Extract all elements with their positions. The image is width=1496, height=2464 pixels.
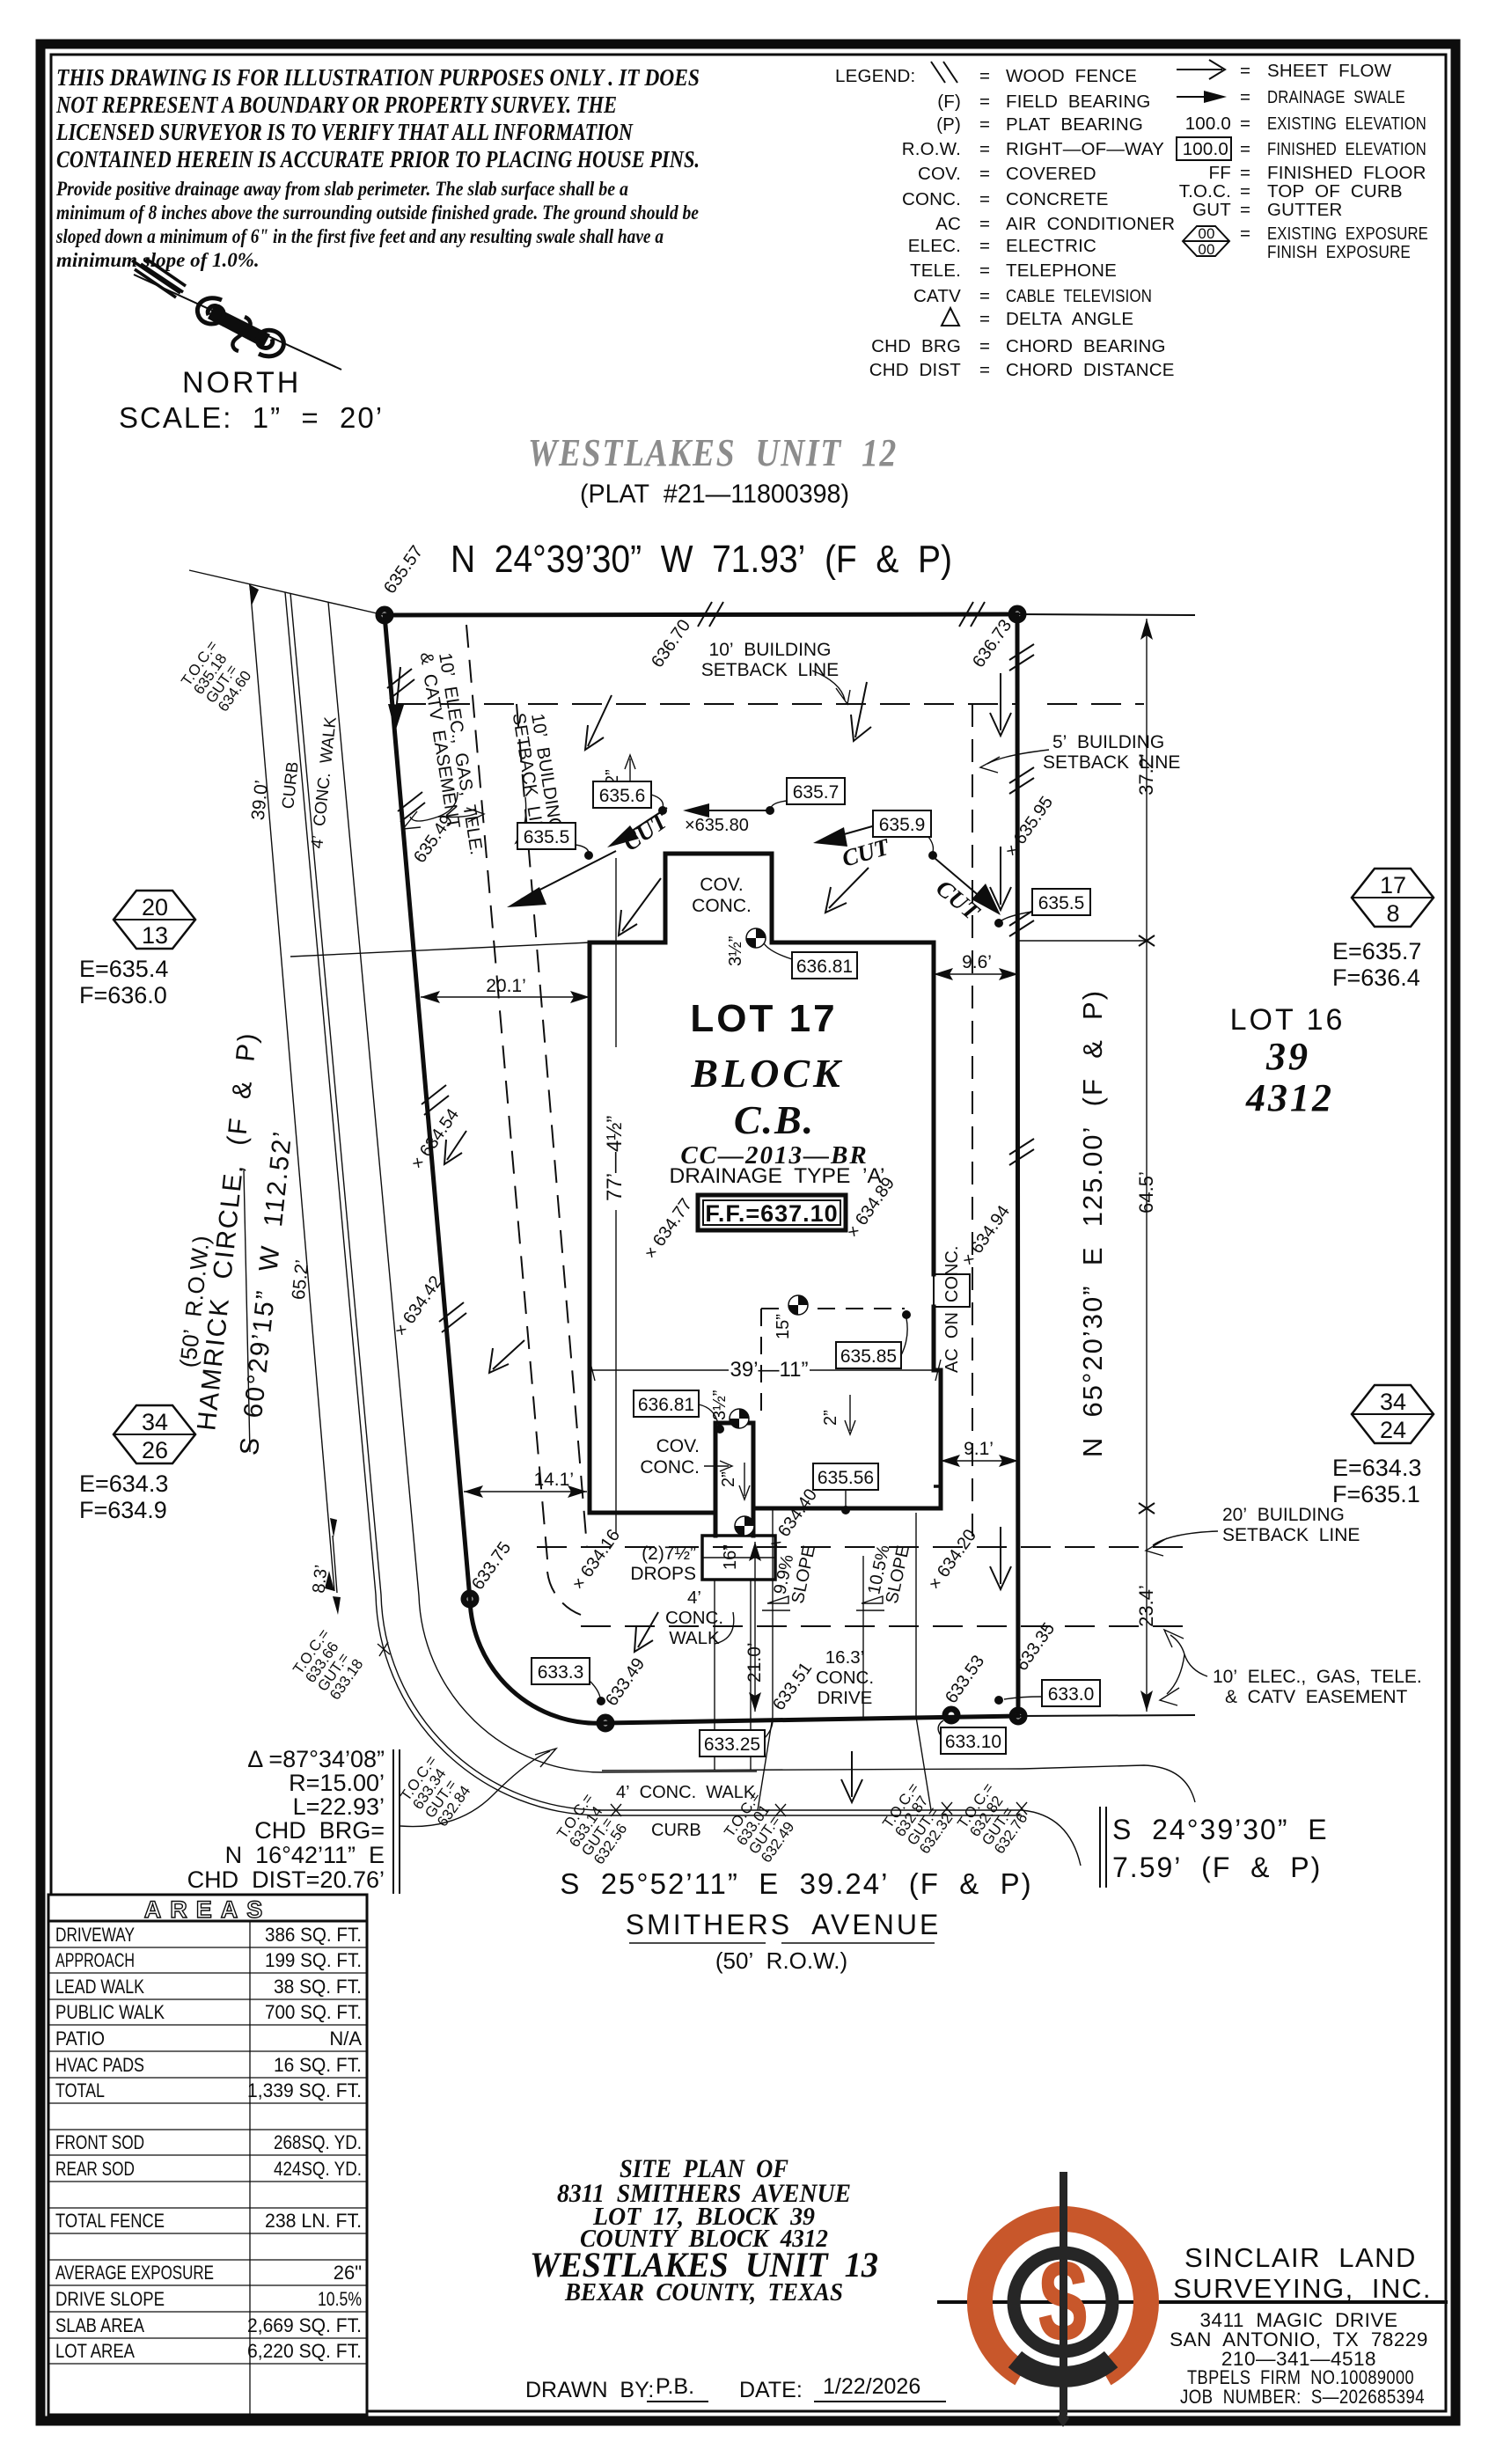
svg-text:Provide positive drainage away: Provide positive drainage away from slab… [55,178,628,200]
svg-text:CONC.: CONC. [902,189,961,209]
svg-text:424SQ. YD.: 424SQ. YD. [274,2158,362,2180]
svg-text:2”: 2” [821,1410,840,1426]
svg-text:CHD DIST=20.76’: CHD DIST=20.76’ [187,1866,385,1893]
svg-text:GUT: GUT [1192,200,1231,220]
svg-text:RIGHT—OF—WAY: RIGHT—OF—WAY [1006,139,1164,159]
svg-text:SMITHERS AVENUE: SMITHERS AVENUE [626,1909,942,1940]
svg-text:1/22/2026: 1/22/2026 [823,2374,920,2399]
svg-text:TOP OF CURB: TOP OF CURB [1267,181,1403,202]
svg-text:4’ CONC. WALK: 4’ CONC. WALK [616,1783,756,1802]
svg-text:AC: AC [935,214,961,234]
svg-text:(2)7½”: (2)7½” [642,1544,696,1564]
svg-text:N/A: N/A [329,2028,362,2050]
svg-text:=: = [1240,87,1250,107]
svg-text:4312: 4312 [1245,1076,1334,1119]
svg-text:SINCLAIR LAND: SINCLAIR LAND [1184,2242,1417,2273]
svg-text:=: = [979,360,990,380]
svg-text:CONC.: CONC. [692,896,752,916]
svg-text:PATIO: PATIO [55,2028,105,2050]
svg-text:APPROACH: APPROACH [55,1949,135,1971]
svg-text:=: = [979,309,990,329]
svg-text:=: = [1240,181,1250,202]
svg-text:=: = [979,164,990,184]
svg-text:COV.: COV. [700,875,743,895]
svg-text:633.3: 633.3 [538,1662,584,1683]
svg-text:F=636.4: F=636.4 [1332,964,1420,991]
svg-text:CHD BRG=: CHD BRG= [254,1817,385,1844]
svg-text:REAR SOD: REAR SOD [55,2158,135,2180]
svg-text:(PLAT #21—11800398): (PLAT #21—11800398) [580,480,849,509]
svg-text:S 25°52’11” E 39.24’ (F &: S 25°52’11” E 39.24’ (F & P) [560,1867,1032,1900]
svg-text:34: 34 [142,1409,168,1435]
svg-text:15”: 15” [774,1314,793,1339]
svg-text:CABLE TELEVISION: CABLE TELEVISION [1006,286,1152,306]
svg-text:N 16°42’11” E: N 16°42’11” E [225,1842,385,1868]
svg-text:=: = [979,336,990,356]
svg-text:100.0: 100.0 [1183,139,1228,159]
svg-text:16 SQ. FT.: 16 SQ. FT. [274,2054,362,2076]
svg-text:199 SQ. FT.: 199 SQ. FT. [265,1949,362,1971]
svg-text:26": 26" [334,2262,362,2284]
svg-text:700 SQ. FT.: 700 SQ. FT. [265,2001,362,2023]
svg-text:9.6’: 9.6’ [962,952,992,972]
svg-text:THIS DRAWING IS FOR ILLUSTRATI: THIS DRAWING IS FOR ILLUSTRATION PURPOSE… [56,64,700,91]
svg-text:LOT AREA: LOT AREA [55,2340,135,2362]
svg-text:GUTTER: GUTTER [1267,200,1342,220]
svg-text:=: = [979,260,990,281]
svg-text:CONC.: CONC. [665,1608,723,1628]
svg-text:633.0: 633.0 [1048,1684,1095,1705]
svg-text:S 24°39’30” E: S 24°39’30” E [1112,1814,1329,1845]
svg-text:ELEC.: ELEC. [908,236,961,256]
svg-text:633.25: 633.25 [704,1734,760,1755]
svg-text:SETBACK LINE: SETBACK LINE [701,660,839,680]
svg-text:R.O.W.: R.O.W. [902,139,961,159]
svg-text:SLAB AREA: SLAB AREA [55,2314,144,2336]
svg-text:=: = [1240,224,1250,244]
svg-text:WOOD FENCE: WOOD FENCE [1006,66,1137,86]
svg-text:633.10: 633.10 [945,1732,1001,1752]
svg-text:E=635.7: E=635.7 [1332,938,1421,964]
svg-text:sloped down a minimum of 6" in: sloped down a minimum of 6" in the first… [55,225,664,247]
svg-text:20: 20 [142,894,168,920]
svg-text:minimum of 8 inches above the: minimum of 8 inches above the surroundin… [56,202,699,224]
svg-text:=: = [979,214,990,234]
svg-text:=: = [1240,163,1250,183]
svg-text:SCALE: 1” = 20’: SCALE: 1” = 20’ [119,401,384,434]
svg-text:DRAINAGE TYPE ’A’: DRAINAGE TYPE ’A’ [670,1164,885,1188]
svg-text:636.81: 636.81 [638,1395,694,1415]
svg-text:& CATV EASEMENT: & CATV EASEMENT [1225,1687,1407,1707]
svg-text:(P): (P) [936,114,961,135]
svg-text:9.1’: 9.1’ [964,1439,994,1459]
svg-text:BEXAR COUNTY, TEXAS: BEXAR COUNTY, TEXAS [564,2279,843,2306]
svg-text:T.O.C.: T.O.C. [1179,181,1231,202]
svg-text:=: = [979,236,990,256]
svg-text:20.1’: 20.1’ [486,976,526,996]
svg-text:=: = [979,114,990,135]
svg-text:=: = [979,92,990,112]
svg-text:4’: 4’ [687,1588,701,1608]
svg-text:AC ON CONC.: AC ON CONC. [942,1246,962,1373]
svg-text:5’ BUILDING: 5’ BUILDING [1052,732,1164,752]
svg-text:COV.: COV. [918,164,961,184]
svg-text:386 SQ. FT.: 386 SQ. FT. [265,1924,362,1946]
svg-text:FINISHED FLOOR: FINISHED FLOOR [1267,163,1426,183]
svg-text:FIELD BEARING: FIELD BEARING [1006,92,1151,112]
svg-text:CURB: CURB [651,1821,701,1840]
svg-text:ELECTRIC: ELECTRIC [1006,236,1096,256]
svg-text:DRIVE SLOPE: DRIVE SLOPE [55,2288,165,2310]
svg-text:6,220 SQ. FT.: 6,220 SQ. FT. [247,2340,362,2362]
svg-text:CONC.: CONC. [816,1668,874,1688]
svg-text:CONTAINED HEREIN IS ACCURATE P: CONTAINED HEREIN IS ACCURATE PRIOR TO PL… [56,146,700,172]
svg-text:13: 13 [142,922,168,949]
svg-text:E=634.3: E=634.3 [1332,1455,1421,1481]
svg-text:16”: 16” [721,1544,740,1570]
svg-text:635.5: 635.5 [1038,893,1085,913]
svg-text:CHD DIST: CHD DIST [869,360,962,380]
svg-text:24: 24 [1380,1417,1406,1443]
svg-text:R=15.00’: R=15.00’ [289,1770,385,1796]
svg-text:8.3’: 8.3’ [309,1564,331,1594]
svg-text:AVERAGE EXPOSURE: AVERAGE EXPOSURE [55,2262,214,2284]
svg-text:64.5’: 64.5’ [1135,1171,1157,1214]
svg-text:1,339 SQ. FT.: 1,339 SQ. FT. [247,2079,362,2101]
svg-text:LICENSED SURVEYOR IS TO VERIFY: LICENSED SURVEYOR IS TO VERIFY THAT ALL … [55,119,634,145]
svg-text:=: = [1240,200,1250,220]
svg-text:=: = [1240,139,1250,159]
svg-text:F.F.=637.10: F.F.=637.10 [705,1200,838,1227]
svg-text:=: = [979,189,990,209]
svg-text:EXISTING ELEVATION: EXISTING ELEVATION [1267,114,1426,134]
svg-text:=: = [979,286,990,306]
svg-text:×635.80: ×635.80 [685,816,749,835]
svg-text:DATE:: DATE: [739,2378,803,2402]
svg-text:2”: 2” [719,1471,738,1487]
svg-text:=: = [979,139,990,159]
svg-text:LOT 16: LOT 16 [1230,1003,1346,1037]
svg-text:N 65°20’30” E 125.00’ (F: N 65°20’30” E 125.00’ (F & P) [1077,989,1108,1457]
svg-text:77’—4½”: 77’—4½” [603,1116,627,1201]
svg-text:00: 00 [1198,225,1214,242]
svg-text:P.B.: P.B. [656,2374,694,2399]
svg-text:238 LN. FT.: 238 LN. FT. [265,2210,362,2232]
svg-text:DROPS: DROPS [630,1564,696,1584]
svg-text:LEGEND:: LEGEND: [835,66,915,86]
svg-text:LEAD WALK: LEAD WALK [55,1976,144,1998]
svg-text:SETBACK LINE: SETBACK LINE [1222,1525,1360,1545]
svg-text:HVAC PADS: HVAC PADS [55,2054,144,2076]
svg-text:PLAT BEARING: PLAT BEARING [1006,114,1143,135]
svg-text:8: 8 [1386,900,1399,927]
svg-text:16.3’: 16.3’ [825,1647,864,1668]
svg-text:TOTAL FENCE: TOTAL FENCE [55,2210,165,2232]
svg-text:NOT REPRESENT A BOUNDARY OR PR: NOT REPRESENT A BOUNDARY OR PROPERTY SUR… [55,92,617,118]
svg-text:TOTAL: TOTAL [55,2079,105,2101]
svg-text:(50’ R.O.W.): (50’ R.O.W.) [715,1947,847,1974]
svg-text:39: 39 [1265,1035,1310,1078]
svg-text:CHD BRG: CHD BRG [871,336,961,356]
svg-text:L=22.93’: L=22.93’ [293,1793,385,1820]
svg-text:39.0’: 39.0’ [248,779,273,821]
svg-text:FF: FF [1209,163,1231,183]
svg-text:10’ ELEC., GAS, TELE.: 10’ ELEC., GAS, TELE. [1213,1667,1422,1687]
svg-text:COV.: COV. [656,1436,700,1456]
svg-text:CHORD DISTANCE: CHORD DISTANCE [1006,360,1175,380]
svg-text:636.81: 636.81 [796,957,853,977]
svg-text:F=636.0: F=636.0 [79,982,167,1008]
svg-text:100.0: 100.0 [1185,114,1231,134]
svg-text:JOB NUMBER: S—202685394: JOB NUMBER: S—202685394 [1180,2386,1425,2408]
svg-text:635.56: 635.56 [818,1468,874,1488]
svg-text:34: 34 [1380,1389,1406,1415]
svg-text:635.6: 635.6 [599,786,646,806]
svg-text:00: 00 [1198,241,1214,258]
svg-text:10’ BUILDING: 10’ BUILDING [709,640,832,660]
svg-text:C.B.: C.B. [734,1097,815,1142]
svg-text:=: = [979,66,990,86]
svg-text:CONC.: CONC. [640,1457,700,1478]
svg-text:268SQ. YD.: 268SQ. YD. [274,2131,362,2153]
svg-text:635.9: 635.9 [879,815,926,835]
svg-text:21.0’: 21.0’ [744,1642,765,1683]
svg-text:DRIVEWAY: DRIVEWAY [55,1924,135,1946]
svg-text:7.59’ (F & P): 7.59’ (F & P) [1112,1852,1322,1883]
svg-text:EXISTING EXPOSURE: EXISTING EXPOSURE [1267,224,1428,244]
svg-text:WESTLAKES UNIT 12: WESTLAKES UNIT 12 [528,431,898,474]
svg-text:SURVEYING, INC.: SURVEYING, INC. [1173,2273,1432,2304]
svg-text:65.2’: 65.2’ [289,1258,313,1301]
svg-text:(F): (F) [937,92,961,112]
svg-text:AREAS: AREAS [144,1896,272,1923]
svg-text:10.5%: 10.5% [318,2288,362,2310]
svg-text:AIR CONDITIONER: AIR CONDITIONER [1006,214,1175,234]
svg-text:WALK: WALK [669,1628,720,1648]
svg-text:3½”: 3½” [726,936,745,966]
svg-text:CHORD BEARING: CHORD BEARING [1006,336,1166,356]
svg-text:F=634.9: F=634.9 [79,1497,167,1523]
svg-text:SETBACK LINE: SETBACK LINE [1043,752,1180,773]
svg-text:23.4’: 23.4’ [1135,1585,1157,1627]
svg-text:635.7: 635.7 [793,782,840,803]
svg-text:17: 17 [1380,872,1406,898]
svg-text:635.85: 635.85 [840,1346,897,1367]
svg-text:E=635.4: E=635.4 [79,956,168,982]
svg-text:635.5: 635.5 [524,827,570,847]
svg-text:26: 26 [142,1437,168,1463]
svg-text:39’—11”: 39’—11” [730,1358,809,1382]
svg-text:COVERED: COVERED [1006,164,1096,184]
svg-text:=: = [1240,114,1250,134]
svg-text:PUBLIC WALK: PUBLIC WALK [55,2001,165,2023]
svg-text:E=634.3: E=634.3 [79,1470,168,1497]
svg-text:FRONT SOD: FRONT SOD [55,2131,144,2153]
svg-text:CONCRETE: CONCRETE [1006,189,1109,209]
svg-text:14.1’: 14.1’ [533,1470,574,1490]
svg-text:FINISH EXPOSURE: FINISH EXPOSURE [1267,242,1411,262]
svg-text:SHEET FLOW: SHEET FLOW [1267,61,1392,81]
svg-text:CATV: CATV [913,286,961,306]
svg-text:TELEPHONE: TELEPHONE [1006,260,1117,281]
svg-text:Δ =87°34’08”: Δ =87°34’08” [247,1746,385,1772]
svg-text:N 24°39’30” W 71.93’ (F &: N 24°39’30” W 71.93’ (F & P) [451,538,952,581]
svg-text:F=635.1: F=635.1 [1332,1481,1420,1507]
svg-text:DRIVE: DRIVE [818,1688,873,1708]
svg-text:DRAWN BY:: DRAWN BY: [525,2378,654,2402]
svg-text:=: = [1240,61,1250,81]
svg-text:NORTH: NORTH [182,366,301,400]
svg-text:38 SQ. FT.: 38 SQ. FT. [274,1976,362,1998]
svg-text:3½”: 3½” [710,1390,730,1420]
svg-text:BLOCK: BLOCK [690,1051,843,1096]
svg-text:TELE.: TELE. [910,260,961,281]
svg-text:DELTA ANGLE: DELTA ANGLE [1006,309,1133,329]
svg-text:DRAINAGE SWALE: DRAINAGE SWALE [1267,87,1405,107]
svg-text:2,669 SQ. FT.: 2,669 SQ. FT. [247,2314,362,2336]
svg-text:FINISHED ELEVATION: FINISHED ELEVATION [1267,139,1426,159]
svg-text:LOT 17: LOT 17 [690,997,837,1040]
svg-text:20’ BUILDING: 20’ BUILDING [1222,1505,1345,1525]
